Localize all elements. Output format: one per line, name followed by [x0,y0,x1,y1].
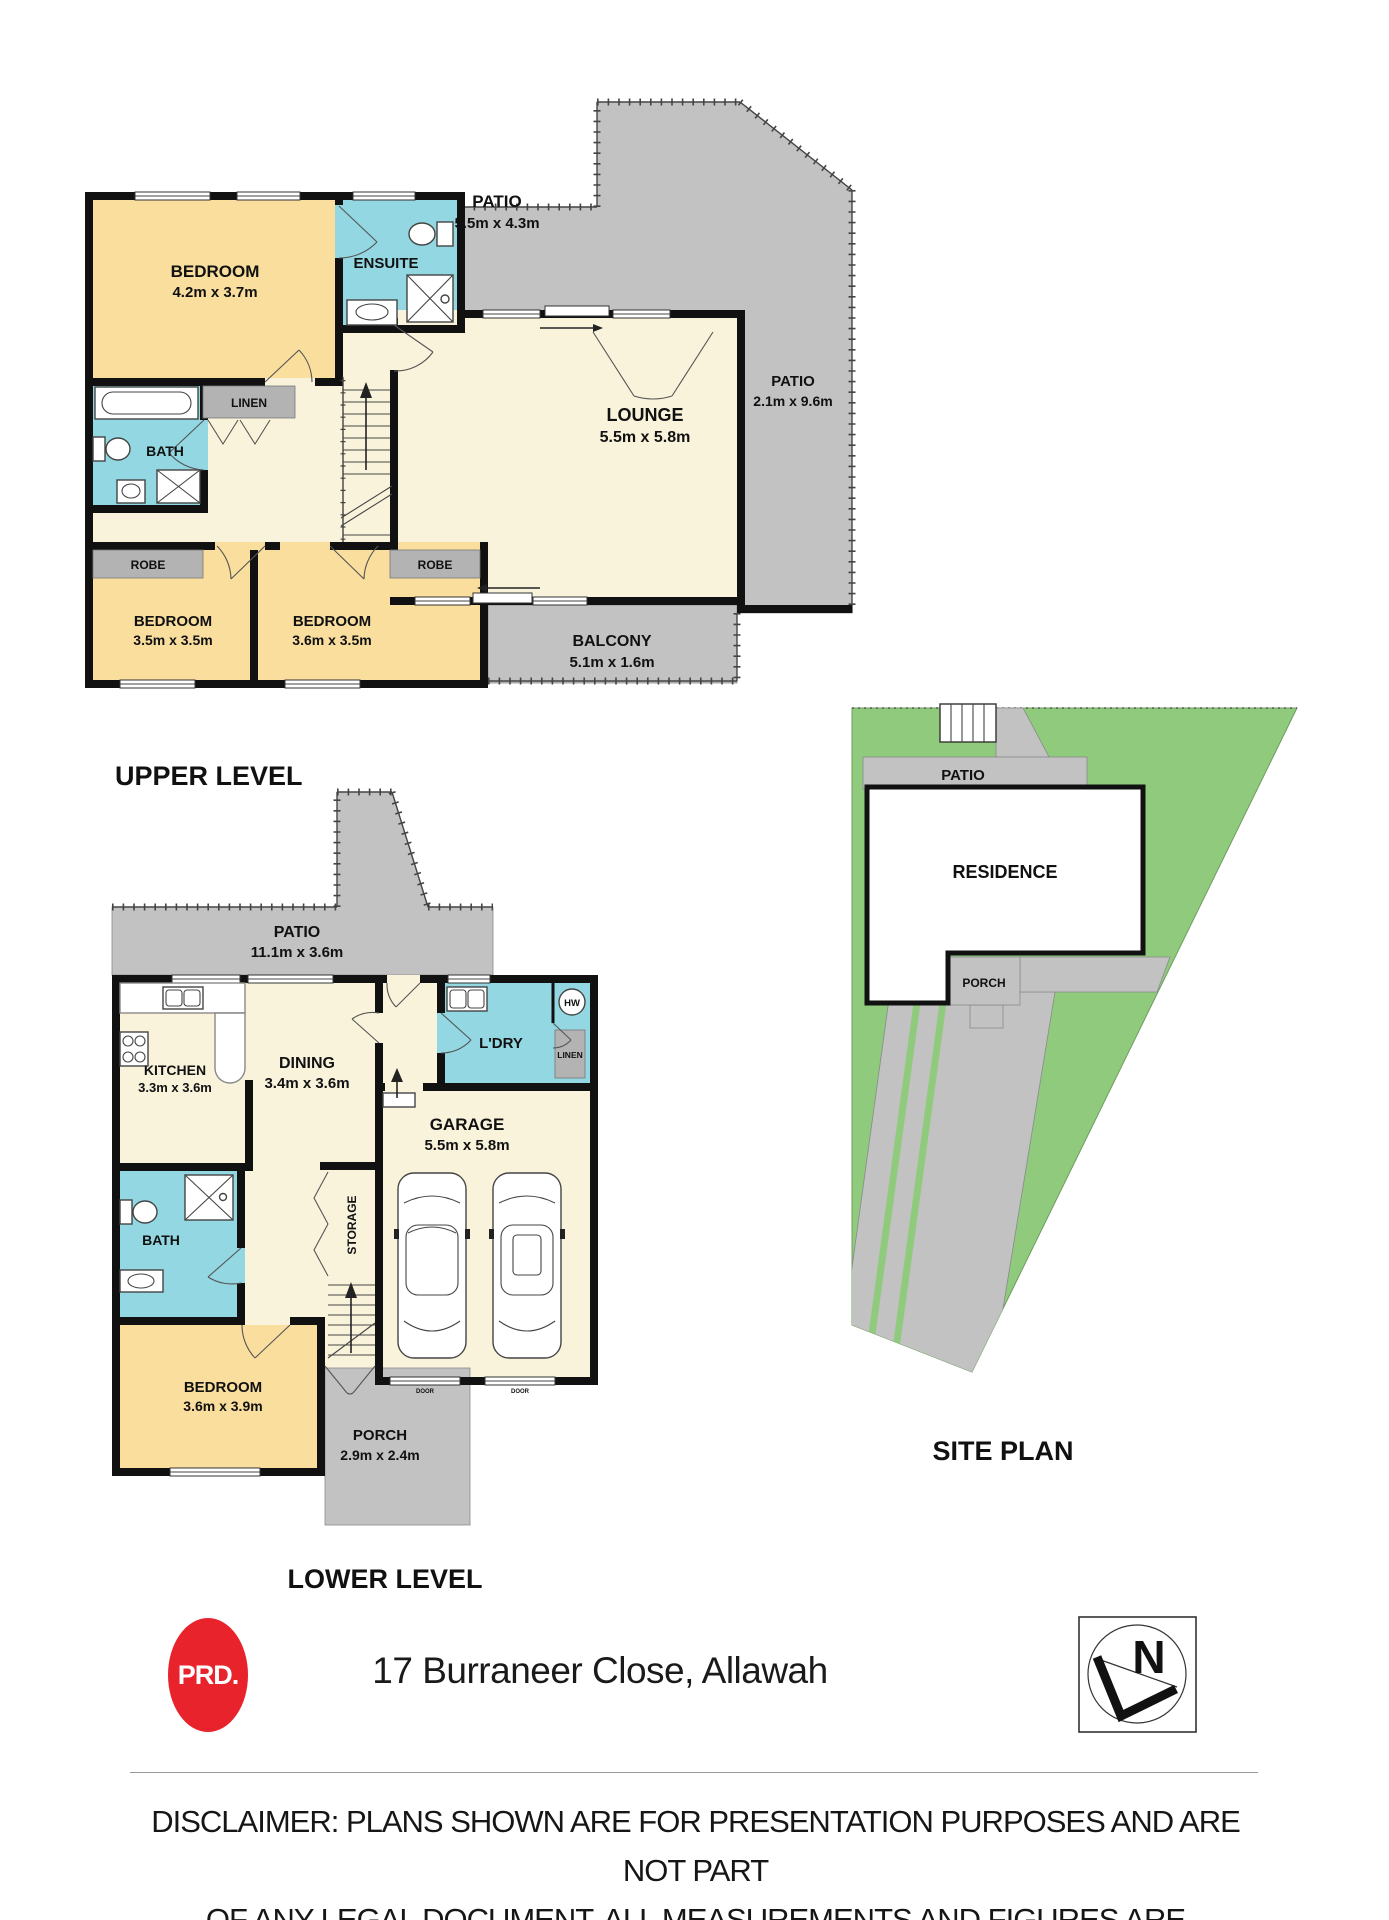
bathtub-fixture [95,387,198,419]
room-label: LOUNGE [606,405,683,425]
site-stairs [940,704,996,742]
disclaimer-line-2: OF ANY LEGAL DOCUMENT. ALL MEASUREMENTS … [118,1896,1273,1920]
lower-level-plan: PATIO 11.1m x 3.6m KITCHEN 3.3m x 3.6m D… [85,780,705,1620]
room-dims: 3.6m x 3.5m [292,632,371,648]
room-dims: 5.5m x 4.3m [454,215,539,232]
footer-divider [130,1772,1258,1773]
room-label: BALCONY [572,633,651,650]
lower-room-fills [112,792,598,1525]
upper-level-plan: BEDROOM 4.2m x 3.7m ENSUITE PATIO 5.5m x… [85,80,860,800]
room-label: LINEN [231,396,267,410]
room-dims: 3.4m x 3.6m [264,1075,349,1092]
room-label: PATIO [274,924,321,941]
room-dims: 3.5m x 3.5m [133,632,212,648]
room-dims: 2.9m x 2.4m [340,1447,419,1463]
room-dims: 4.2m x 3.7m [172,284,257,301]
room-label: BEDROOM [134,613,212,630]
room-label: LINEN [557,1050,583,1060]
room-label: BEDROOM [171,262,260,281]
prd-logo: PRD. [168,1618,248,1732]
room-label: PORCH [353,1427,407,1444]
garage-step [383,1093,415,1107]
room-label: PATIO [771,373,815,390]
site-porch-step [970,1005,1003,1028]
room-label: BEDROOM [293,613,371,630]
room-dims: 2.1m x 9.6m [753,393,832,409]
room-label: DINING [279,1055,335,1072]
basin-fixture [347,300,397,325]
shower-fixture [185,1175,233,1220]
room-label: ROBE [131,558,166,572]
room-label: ENSUITE [353,255,418,272]
room-label: GARAGE [430,1115,505,1134]
lower-level-title: LOWER LEVEL [288,1564,483,1594]
room-label: BEDROOM [184,1379,262,1396]
room-dims: 3.6m x 3.9m [183,1398,262,1414]
room-dims: 11.1m x 3.6m [251,944,344,961]
toilet-fixture [120,1200,157,1224]
basin-fixture [120,1270,163,1292]
compass-north-letter: N [1132,1631,1165,1683]
garage-door-label: DOOR [511,1389,530,1395]
toilet-fixture [93,437,130,461]
room-label: HW [564,998,580,1009]
site-driveway-band [1020,957,1170,992]
garage-door-label: DOOR [416,1389,435,1395]
basin-fixture [117,480,145,503]
car-icon [394,1173,470,1358]
cooktop-fixture [120,1032,148,1066]
room-dims: 5.5m x 5.8m [600,429,691,446]
disclaimer-text: DISCLAIMER: PLANS SHOWN ARE FOR PRESENTA… [118,1798,1273,1920]
open-edge-hatching [112,792,493,907]
room-label: ROBE [418,558,453,572]
area-label: PATIO [941,767,985,784]
room-dims: 3.3m x 3.6m [138,1080,212,1095]
shower-fixture [407,275,453,322]
room-label: BATH [146,443,184,459]
area-label: RESIDENCE [952,862,1057,882]
room-label: KITCHEN [144,1062,206,1078]
disclaimer-line-1: DISCLAIMER: PLANS SHOWN ARE FOR PRESENTA… [118,1798,1273,1896]
room-label: STORAGE [345,1195,359,1254]
area-label: PORCH [962,976,1005,990]
floorplan-page: BEDROOM 4.2m x 3.7m ENSUITE PATIO 5.5m x… [0,0,1389,1920]
toilet-fixture [409,222,453,246]
room-dims: 5.5m x 5.8m [424,1137,509,1154]
site-plan: PATIO RESIDENCE PORCH SITE PLAN [840,700,1320,1480]
compass-icon: N [1078,1616,1198,1734]
room-dims: 5.1m x 1.6m [569,654,654,671]
room-label: L'DRY [479,1035,523,1052]
laundry-tub [447,987,487,1011]
car-icon [489,1173,565,1358]
site-plan-title: SITE PLAN [932,1436,1073,1466]
room-label: BATH [142,1232,180,1248]
patio-sliding-door [545,306,609,316]
shower-fixture [157,470,200,503]
room-label: PATIO [472,192,521,211]
property-address: 17 Burraneer Close, Allawah [280,1650,920,1692]
prd-logo-text: PRD. [178,1660,239,1691]
balcony-sliding-door [473,593,532,603]
